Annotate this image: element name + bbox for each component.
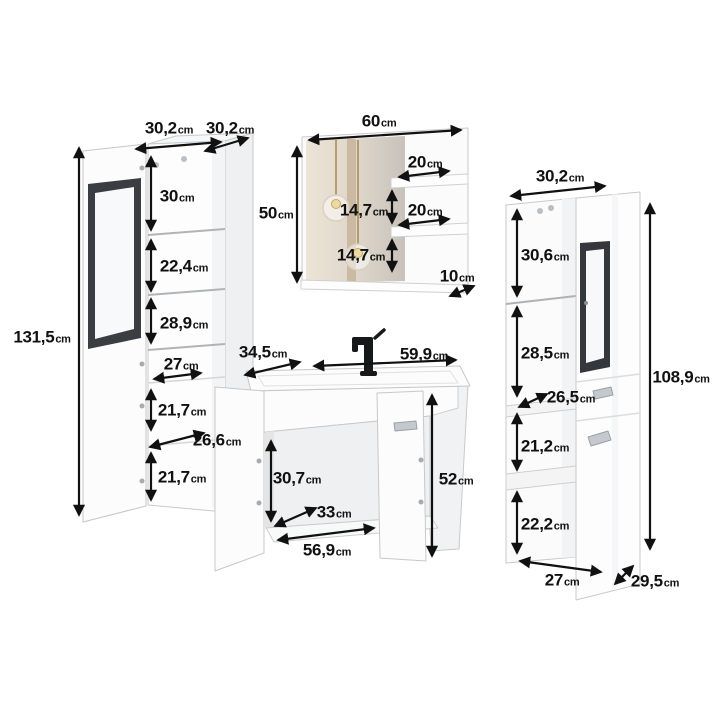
vanity-left-door-open [215,387,264,571]
washbasin-top [246,366,470,391]
arrow-vanity-width [314,360,456,366]
vanity-door-handle [394,421,417,431]
right-cabinet-interior-shade [562,198,576,558]
vanity-right-door [377,391,426,561]
arrow-right-width [511,186,605,196]
furniture-dimensions-diagram: 30,2cm 30,2cm 131,5cm 30cm 22,4cm 28,9cm… [0,0,720,720]
right-cabinet-door-hinge [584,301,588,305]
mirror-cabinet [301,128,469,293]
diagram-drawing [0,0,720,720]
left-cabinet-glass-door-pane [95,187,134,339]
right-cabinet-glass-door-pane [586,249,604,363]
right-tall-cabinet [506,192,640,600]
right-cabinet-gloss [612,193,618,589]
